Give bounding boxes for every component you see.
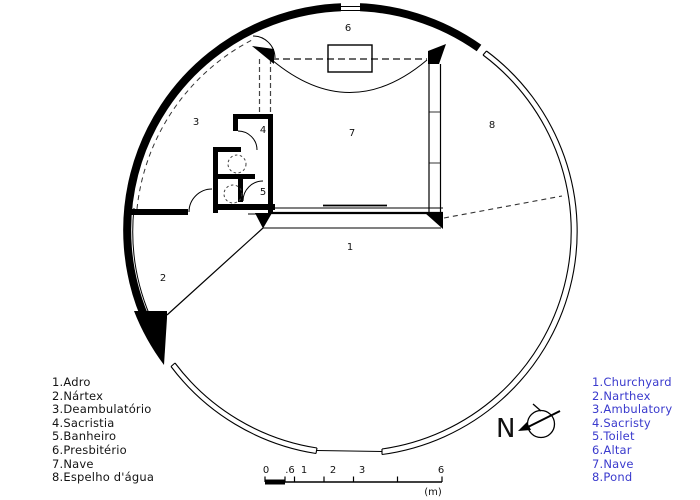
legend-item: 3.Ambulatory [592,403,672,417]
legend-item: 4.Sacristy [592,417,672,431]
legend-item: 1.Adro [52,376,154,390]
toilet-fixture-1 [228,155,246,173]
nave-walls [248,64,443,229]
room-label-pond: 8 [489,120,495,131]
north-circle [528,411,555,438]
legend-english: 1.Churchyard 2.Narthex 3.Ambulatory 4.Sa… [592,376,672,485]
scale-bar: 0 .6 1 2 3 6 (m) [263,465,444,498]
narthex-boundary-line [167,228,263,315]
site-dashed-line [444,196,562,218]
room-label-churchyard: 1 [347,242,353,253]
corner-column-nw [252,46,274,64]
legend-item: 5.Toilet [592,430,672,444]
legend-item: 3.Deambulatório [52,403,154,417]
room-label-sacristy: 4 [260,125,266,136]
scale-label-6: 6 [438,465,444,476]
legend-item: 5.Banheiro [52,430,154,444]
corner-column-sw [255,213,272,229]
pond-gap-bridge-line [317,451,382,452]
legend-item: 8.Espelho d'água [52,471,154,485]
legend-item: 7.Nave [52,458,154,472]
room-label-ambulatory: 3 [193,117,199,128]
chancel-step-curve [272,60,427,93]
room-label-toilet: 5 [260,187,266,198]
north-arrow: N [496,404,560,444]
scale-unit: (m) [424,487,442,498]
room-label-nave: 7 [349,128,355,139]
scale-label-1: 1 [301,465,307,476]
scale-label-3: 3 [359,465,365,476]
pond-wall-arc [171,51,577,455]
scale-label-06: .6 [285,465,295,476]
scale-label-2: 2 [330,465,336,476]
north-arrowhead-icon [518,422,531,431]
legend-item: 6.Altar [592,444,672,458]
legend-item: 8.Pond [592,471,672,485]
narthex-entry [134,228,263,365]
outer-wall-arc [127,1,479,315]
legend-item: 7.Nave [592,458,672,472]
entry-ramp-wedge [134,311,167,365]
north-letter: N [496,414,515,444]
legend-item: 2.Narthex [592,390,672,404]
room-label-narthex: 2 [160,273,166,284]
ambulatory-south-wall [130,189,212,215]
legend-item: 6.Presbitério [52,444,154,458]
legend-portuguese: 1.Adro 2.Nártex 3.Deambulatório 4.Sacris… [52,376,154,485]
corner-column-ne [428,44,446,64]
floor-plan-page: 1 2 3 4 5 6 7 8 N 0 .6 1 2 [0,0,700,500]
scale-label-0: 0 [263,465,269,476]
legend-item: 1.Churchyard [592,376,672,390]
door-swing-arc [189,189,212,212]
presbytery-area [252,36,446,114]
corner-column-se [425,213,443,229]
legend-item: 2.Nártex [52,390,154,404]
room-label-altar: 6 [345,23,351,34]
legend-item: 4.Sacristia [52,417,154,431]
